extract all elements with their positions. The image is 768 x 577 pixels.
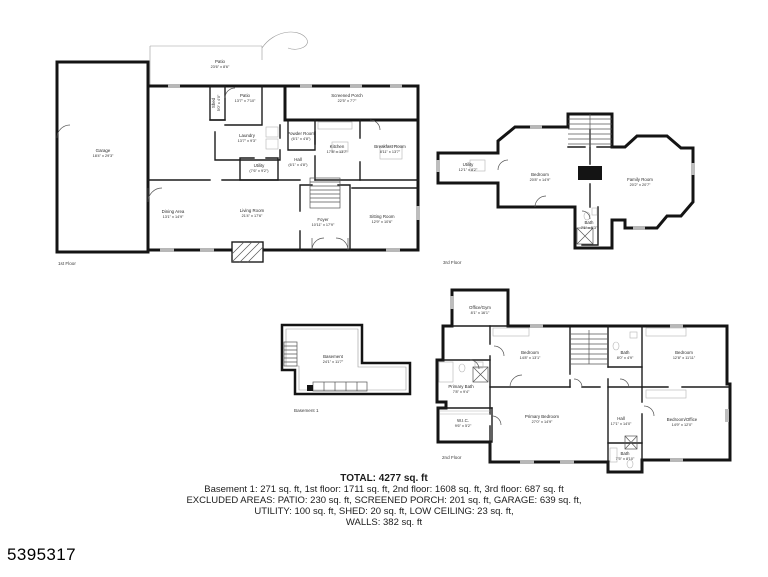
room-dims-bedroom-office: 14'9" x 12'0" <box>672 423 693 427</box>
room-dims-wic: 9'6" x 5'2" <box>455 424 472 428</box>
room-label-utility1: Utility <box>254 163 266 168</box>
room-label-bath3: Bath <box>584 220 594 225</box>
room-dims-basement: 24'1" x 11'7" <box>323 360 344 364</box>
room-dims-shed: 5'0" x 4'0" <box>217 94 221 111</box>
room-label-foyer: Foyer <box>317 217 329 222</box>
excluded-areas-line2: UTILITY: 100 sq. ft, SHED: 20 sq. ft, LO… <box>0 507 768 518</box>
floor-label-basement: Basement 1 <box>294 408 319 413</box>
room-label-basement: Basement <box>323 354 344 359</box>
room-dims-utility1: (7'6" x 9'2") <box>249 169 269 173</box>
room-dims-bedroom-left: 14'8" x 13'1" <box>520 356 541 360</box>
chimney <box>578 166 602 180</box>
room-dims-bath-bottom: 7'5" x 8'10" <box>616 457 635 461</box>
room-dims-utility3: 12'1" x 8'2" <box>459 168 478 172</box>
room-dims-primary-bedroom: 27'0" x 14'9" <box>532 420 553 424</box>
room-dims-bath-top: 8'0" x 4'9" <box>617 356 634 360</box>
room-label-bedroom-left: Bedroom <box>521 350 539 355</box>
room-dims-laundry: 13'7" x 9'3" <box>238 139 257 143</box>
room-label-hall1: Hall <box>294 157 302 162</box>
room-dims-dining: 13'1" x 14'9" <box>163 215 184 219</box>
listing-id: 5395317 <box>7 545 76 565</box>
room-label-bath-top: Bath <box>620 350 630 355</box>
room-dims-garage: 18'4" x 29'3" <box>93 154 114 158</box>
room-dims-kitchen: 17'8" x 13'7" <box>327 150 348 154</box>
walls-2nd-floor <box>437 290 730 472</box>
room-label-kitchen: Kitchen <box>330 144 345 149</box>
room-label-shed: Shed <box>211 97 216 108</box>
room-dims-hall2: 17'1" x 14'0" <box>611 422 632 426</box>
room-label-family: Family Room <box>627 177 653 182</box>
room-label-garage: Garage <box>96 148 111 153</box>
floor-label-1st: 1st Floor <box>58 261 76 266</box>
room-label-primary-bedroom: Primary Bedroom <box>525 414 560 419</box>
area-summary: TOTAL: 4277 sq. ft Basement 1: 271 sq. f… <box>0 474 768 529</box>
room-dims-bedroom3: 20'8" x 14'9" <box>530 178 551 182</box>
walls-area-line: WALLS: 382 sq. ft <box>0 518 768 529</box>
floor-plan-1st-floor: Garage 18'4" x 29'3" Patio 23'6" x 8'6" … <box>50 26 425 274</box>
room-dims-sitting: 12'9" x 10'6" <box>372 220 393 224</box>
room-label-laundry: Laundry <box>239 133 256 138</box>
room-label-dining: Dining Area <box>162 209 185 214</box>
room-label-primary-bath: Primary Bath <box>448 384 474 389</box>
room-label-living: Living Room <box>240 208 265 213</box>
room-label-office-gym: Office/Gym <box>469 305 491 310</box>
floor-plan-sheet: Garage 18'4" x 29'3" Patio 23'6" x 8'6" … <box>0 0 768 577</box>
room-dims-primary-bath: 7'8" x 9'4" <box>453 390 470 394</box>
room-label-bedroom-right: Bedroom <box>675 350 693 355</box>
room-label-bedroom-office: Bedroom/Office <box>667 417 698 422</box>
floor-label-3rd: 3rd Floor <box>443 260 462 265</box>
room-label-hall2: Hall <box>617 416 625 421</box>
room-label-patio-top: Patio <box>215 59 226 64</box>
floor-plan-2nd-floor: Office/Gym 8'1" x 16'1" Bedroom 14'8" x … <box>430 284 735 476</box>
room-dims-patio-top: 23'6" x 8'6" <box>211 65 230 69</box>
room-label-screened-porch: Screened Porch <box>331 93 363 98</box>
room-dims-family: 20'2" x 20'7" <box>630 183 651 187</box>
room-dims-patio: 13'7" x 7'10" <box>235 99 256 103</box>
room-label-patio: Patio <box>240 93 251 98</box>
room-label-wic: W.I.C. <box>457 418 469 423</box>
room-dims-living: 21'4" x 17'6" <box>242 214 263 218</box>
room-dims-powder: (6'1" x 4'8") <box>291 137 311 141</box>
room-label-breakfast: Breakfast Room <box>374 144 406 149</box>
room-label-bath-bottom: Bath <box>620 451 630 456</box>
room-dims-screened-porch: 22'5" x 7'7" <box>338 99 357 103</box>
walls-3rd-floor <box>436 114 695 248</box>
walls-basement <box>282 325 410 394</box>
floor-plan-basement: Basement 24'1" x 11'7" Basement 1 <box>278 318 428 418</box>
room-dims-hall1: (6'1" x 4'8") <box>288 163 308 167</box>
room-label-utility3: Utility <box>463 162 475 167</box>
room-dims-office-gym: 8'1" x 16'1" <box>471 311 490 315</box>
room-dims-bath3: 7'1" x 5'3" <box>581 226 598 230</box>
room-label-sitting: Sitting Room <box>369 214 394 219</box>
room-dims-bedroom-right: 12'8" x 11'11" <box>673 356 696 360</box>
room-label-powder: Powder Room <box>287 131 315 136</box>
floor-label-2nd: 2nd Floor <box>442 455 462 460</box>
walls-1st-floor <box>57 32 420 262</box>
basement-post <box>307 385 313 391</box>
room-dims-breakfast: 8'11" x 13'7" <box>380 150 401 154</box>
room-dims-foyer: 10'11" x 17'9" <box>312 223 335 227</box>
floor-plan-3rd-floor: Utility 12'1" x 8'2" Bedroom 20'8" x 14'… <box>435 108 697 270</box>
room-label-bedroom3: Bedroom <box>531 172 549 177</box>
